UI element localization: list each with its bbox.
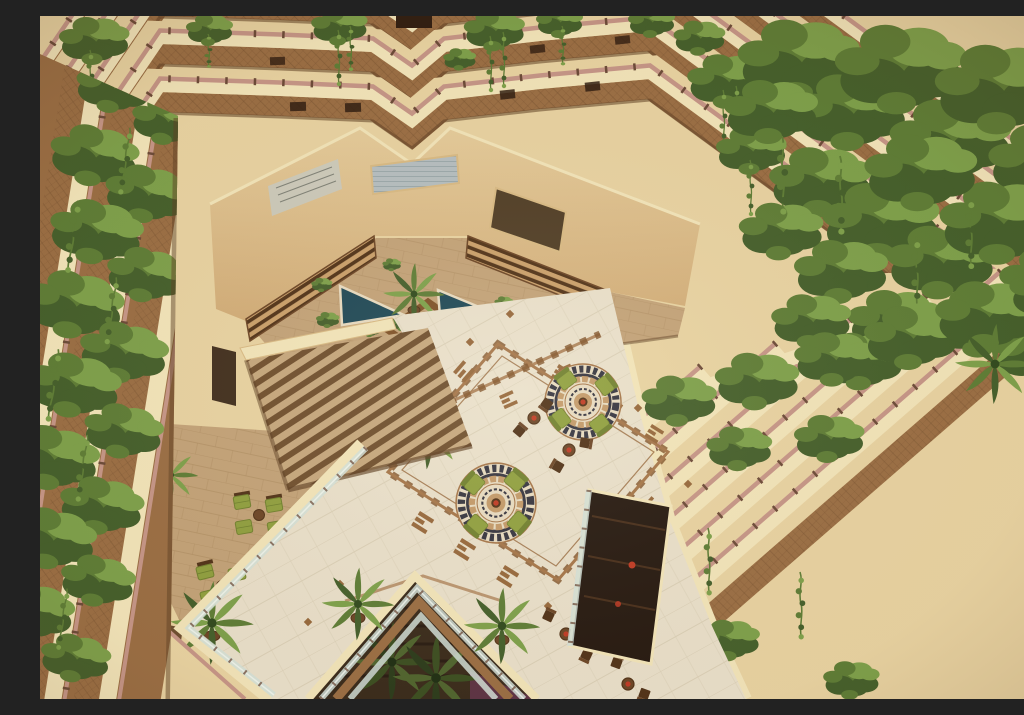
ambient-lighting [40,16,1024,699]
atrium-scene [40,16,1024,699]
atrium-photograph [40,16,1024,699]
